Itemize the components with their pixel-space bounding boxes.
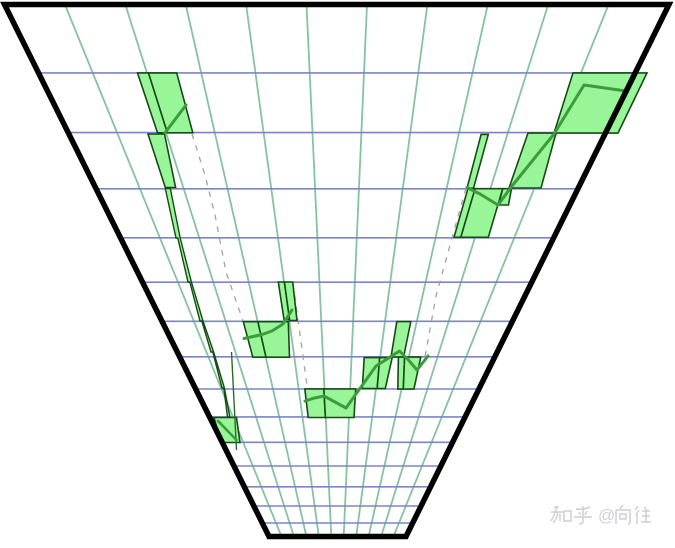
svg-text:@: @ xyxy=(598,506,615,525)
